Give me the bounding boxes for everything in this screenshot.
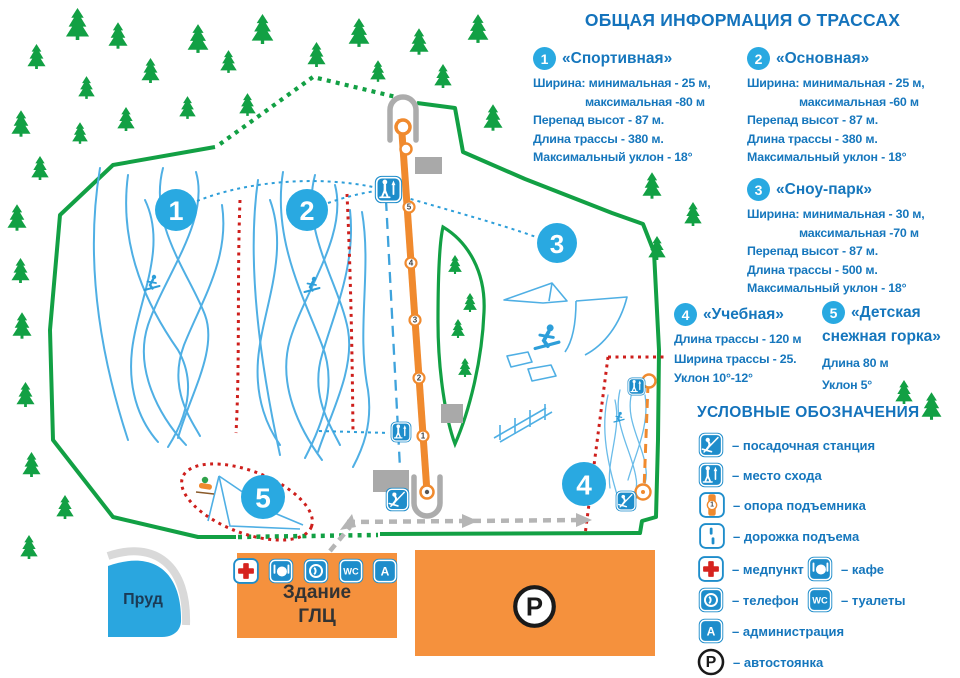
badge-1: 1 <box>168 196 183 226</box>
road-arrow-icon <box>340 514 356 530</box>
svg-text:1: 1 <box>421 432 426 441</box>
building-label-line1: Здание <box>283 582 351 603</box>
parking-lot <box>415 550 655 656</box>
svg-text:5: 5 <box>407 203 412 212</box>
ski-resort-map-page: 1 <box>0 0 960 678</box>
building-label-line2: ГЛЦ <box>298 606 336 627</box>
pond-label: Пруд <box>123 591 163 608</box>
wc-icon <box>339 559 364 584</box>
badge-5: 5 <box>255 483 271 514</box>
svg-text:4: 4 <box>409 259 414 268</box>
road-arrow-icon <box>462 514 478 528</box>
sled-kid-figure <box>196 477 214 494</box>
medpoint-icon <box>234 559 258 583</box>
trail-map: Пруд Здание ГЛЦ <box>0 0 960 678</box>
lift-boarding-icon <box>616 491 637 512</box>
svg-text:2: 2 <box>417 374 422 383</box>
pond: Пруд <box>108 551 186 637</box>
badge-2: 2 <box>299 196 314 226</box>
badge-4: 4 <box>576 470 592 501</box>
administration-icon <box>373 559 398 584</box>
lift-boarding-icon <box>386 488 410 512</box>
base-lodge: Здание ГЛЦ <box>234 553 397 638</box>
rider-figures <box>145 275 625 422</box>
road-arrow-icon <box>576 513 592 527</box>
lift-exit-icon <box>391 422 412 443</box>
skier-icon <box>614 412 624 422</box>
lift-exit-icon <box>375 176 402 203</box>
phone-icon <box>304 559 329 584</box>
svg-text:3: 3 <box>413 316 418 325</box>
badge-3: 3 <box>550 229 564 259</box>
cafe-icon <box>269 559 294 584</box>
lift-exit-icon <box>628 378 646 396</box>
snowboarder-icon <box>305 277 320 292</box>
snowboarder-icon <box>535 324 559 348</box>
island-trees <box>448 255 477 377</box>
snowpark-features <box>494 283 627 442</box>
parking-icon <box>515 587 554 626</box>
